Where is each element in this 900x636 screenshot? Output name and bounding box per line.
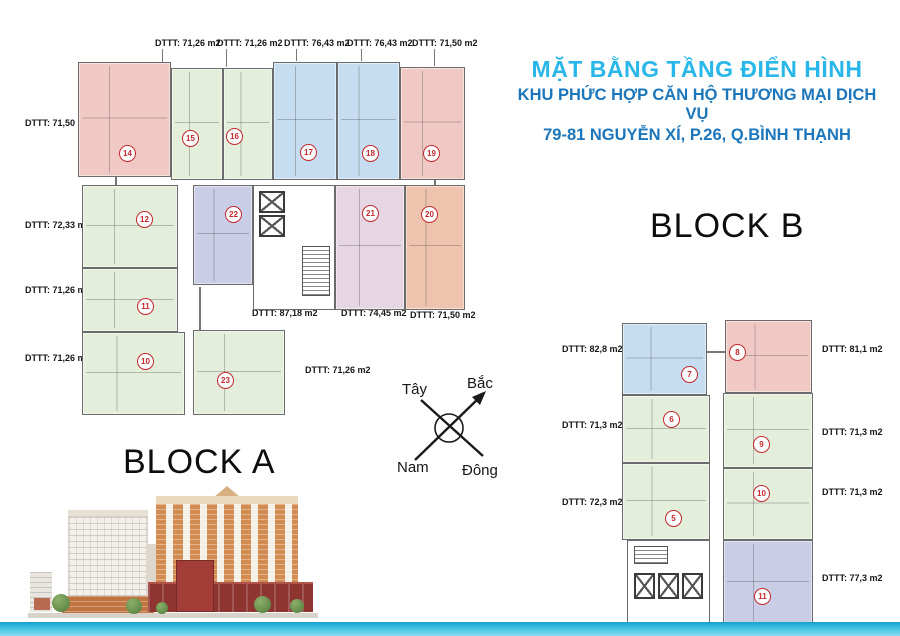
unit-number-badge: 16 [226, 128, 243, 145]
tree [126, 598, 142, 614]
leader-line [296, 49, 297, 61]
footer-bar [0, 622, 900, 636]
area-label: DTTT: 71,3 m2 [822, 427, 883, 437]
tree [52, 594, 70, 612]
unit-number-badge: 14 [119, 145, 136, 162]
elevator-shaft [634, 573, 655, 599]
area-label: DTTT: 81,1 m2 [822, 344, 883, 354]
unit-number-badge: 15 [182, 130, 199, 147]
stairs [302, 246, 330, 296]
unit-a23: 23 [193, 330, 285, 415]
page-title: MẶT BẰNG TẦNG ĐIỂN HÌNH [512, 56, 882, 83]
area-label: DTTT: 76,43 m2 [284, 38, 350, 48]
unit-number-badge: 23 [217, 372, 234, 389]
unit-number-badge: 8 [729, 344, 746, 361]
elevator-shaft [259, 215, 285, 237]
area-label: DTTT: 71,3 m2 [562, 420, 623, 430]
compass-rose: Tây Bắc Nam Đông [393, 372, 515, 478]
block-a-title: BLOCK A [123, 443, 276, 482]
street-kiosk [34, 598, 50, 610]
area-label: DTTT: 82,8 m2 [562, 344, 623, 354]
left-tower [68, 516, 148, 598]
unit-b8: 8 [725, 320, 812, 393]
elevator-shaft [259, 191, 285, 213]
unit-number-badge: 18 [362, 145, 379, 162]
unit-a18: 18 [337, 62, 400, 180]
unit-a10: 10 [82, 332, 185, 415]
compass: Tây Bắc Nam Đông [393, 372, 515, 478]
block-b-title: BLOCK B [650, 207, 804, 246]
tree [156, 602, 168, 614]
compass-west-label: Tây [402, 381, 428, 398]
unit-a17: 17 [273, 62, 337, 180]
compass-north-label: Bắc [467, 375, 493, 392]
leader-line [361, 49, 362, 61]
leader-line [226, 49, 227, 67]
unit-b7: 7 [622, 323, 707, 395]
area-label: DTTT: 71,50 m2 [410, 310, 476, 320]
area-label: DTTT: 72,3 m2 [562, 497, 623, 507]
unit-number-badge: 11 [754, 588, 771, 605]
elevator-shaft [682, 573, 703, 599]
unit-number-badge: 7 [681, 366, 698, 383]
unit-b10: 10 [723, 468, 813, 540]
area-label: DTTT: 71,26 m2 [155, 38, 221, 48]
area-label: DTTT: 71,26 m2 [25, 353, 91, 363]
unit-number-badge: 10 [753, 485, 770, 502]
unit-number-badge: 20 [421, 206, 438, 223]
leader-line [434, 49, 435, 66]
plan-connector [199, 287, 201, 330]
page-subtitle: KHU PHỨC HỢP CĂN HỘ THƯƠNG MẠI DỊCH VỤ [512, 86, 882, 124]
compass-east-label: Đông [462, 462, 498, 478]
unit-b11: 11 [723, 540, 813, 625]
area-label: DTTT: 71,26 m2 [25, 285, 91, 295]
ground-line [28, 613, 318, 618]
unit-a19: 19 [400, 67, 465, 180]
unit-a14: 14 [78, 62, 171, 177]
unit-b5: 5 [622, 463, 710, 540]
unit-number-badge: 22 [225, 206, 242, 223]
area-label: DTTT: 71,3 m2 [822, 487, 883, 497]
unit-a12: 12 [82, 185, 178, 268]
unit-number-badge: 19 [423, 145, 440, 162]
unit-b6: 6 [622, 395, 710, 463]
unit-a15: 15 [171, 68, 223, 180]
area-label: DTTT: 76,43 m2 [347, 38, 413, 48]
title-block: MẶT BẰNG TẦNG ĐIỂN HÌNH KHU PHỨC HỢP CĂN… [512, 56, 882, 145]
plan-connector [707, 351, 725, 353]
area-label: DTTT: 71,26 m2 [217, 38, 283, 48]
core-block-a [253, 185, 335, 310]
retail-podium [148, 582, 313, 612]
tree [290, 599, 304, 613]
tree [254, 596, 271, 613]
unit-a11: 11 [82, 268, 178, 332]
unit-a21: 21 [335, 185, 405, 310]
core-block-b [627, 540, 710, 625]
area-label: DTTT: 72,33 m2 [25, 220, 91, 230]
area-label: DTTT: 77,3 m2 [822, 573, 883, 583]
area-label: DTTT: 71,26 m2 [305, 365, 371, 375]
area-label: DTTT: 71,50 m2 [412, 38, 478, 48]
unit-number-badge: 5 [665, 510, 682, 527]
unit-a20: 20 [405, 185, 465, 310]
unit-number-badge: 21 [362, 205, 379, 222]
unit-b9: 9 [723, 393, 813, 468]
unit-number-badge: 17 [300, 144, 317, 161]
unit-number-badge: 6 [663, 411, 680, 428]
unit-a22: 22 [193, 185, 253, 285]
building-rendering [28, 486, 318, 624]
stairs [634, 546, 668, 564]
compass-south-label: Nam [397, 459, 429, 476]
unit-number-badge: 10 [137, 353, 154, 370]
main-entrance [176, 560, 214, 612]
floorplan-sheet: MẶT BẰNG TẦNG ĐIỂN HÌNH KHU PHỨC HỢP CĂN… [0, 0, 900, 636]
unit-number-badge: 9 [753, 436, 770, 453]
unit-a16: 16 [223, 68, 273, 180]
elevator-shaft [658, 573, 679, 599]
unit-number-badge: 12 [136, 211, 153, 228]
page-address: 79-81 NGUYỄN XÍ, P.26, Q.BÌNH THẠNH [512, 126, 882, 145]
unit-number-badge: 11 [137, 298, 154, 315]
